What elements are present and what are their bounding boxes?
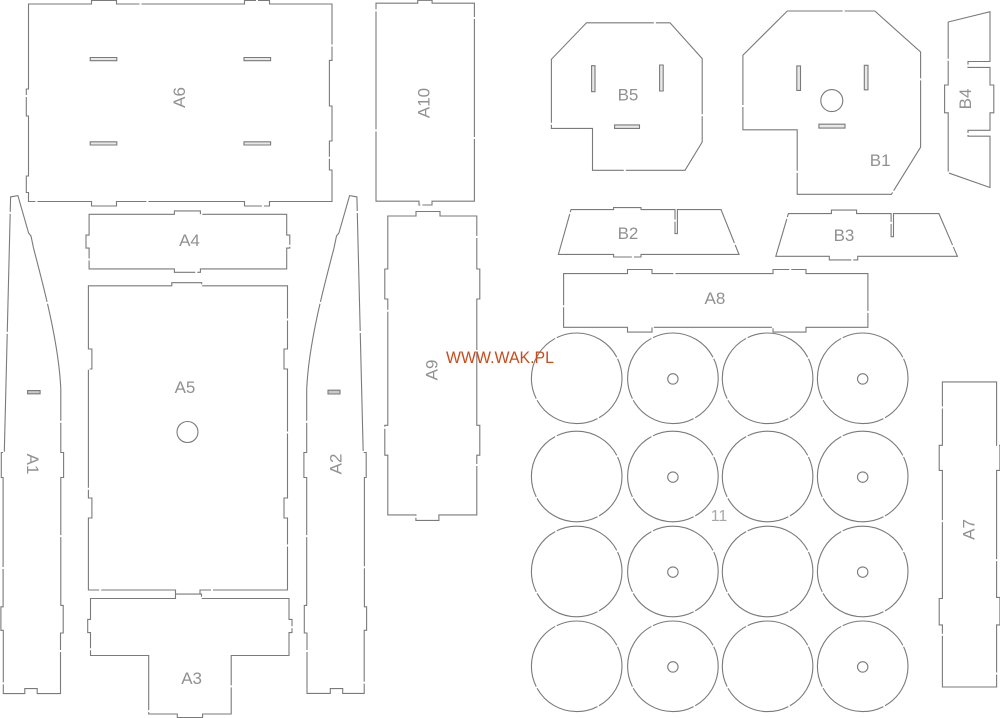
svg-text:A6: A6 xyxy=(170,87,189,108)
svg-text:B3: B3 xyxy=(834,226,855,245)
svg-text:A5: A5 xyxy=(175,378,196,397)
svg-text:A8: A8 xyxy=(705,289,726,308)
svg-text:B1: B1 xyxy=(870,151,891,170)
svg-text:B4: B4 xyxy=(956,89,975,110)
svg-text:A9: A9 xyxy=(422,360,441,381)
svg-text:A4: A4 xyxy=(179,231,200,250)
svg-text:B2: B2 xyxy=(618,224,639,243)
svg-text:11: 11 xyxy=(711,508,728,525)
svg-text:A3: A3 xyxy=(181,669,202,688)
svg-text:A2: A2 xyxy=(326,454,345,475)
svg-text:WWW.WAK.PL: WWW.WAK.PL xyxy=(446,348,554,367)
svg-text:A1: A1 xyxy=(23,454,42,475)
svg-text:A10: A10 xyxy=(414,88,433,118)
svg-text:A7: A7 xyxy=(959,519,978,540)
svg-text:B5: B5 xyxy=(618,86,639,105)
